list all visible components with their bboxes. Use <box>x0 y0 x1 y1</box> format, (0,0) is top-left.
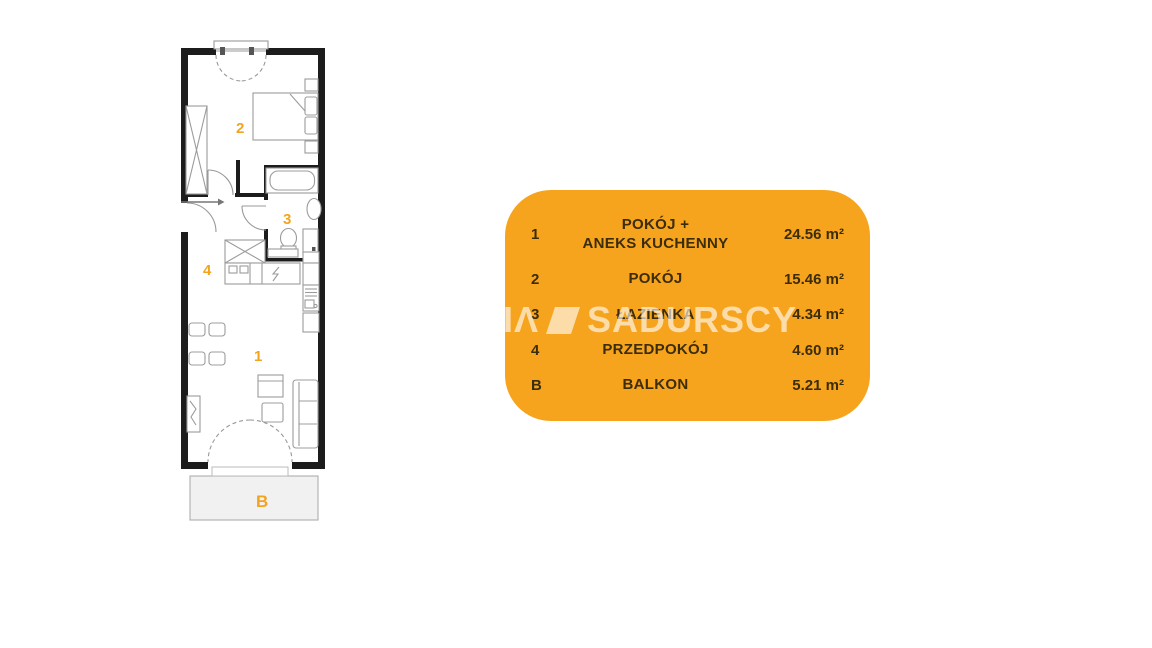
legend-row: B BALKON 5.21 m² <box>531 376 844 395</box>
legend-row-name: POKÓJ <box>567 270 744 289</box>
sofa <box>293 380 318 448</box>
legend-row-name: PRZEDPOKÓJ <box>567 341 744 360</box>
hall-label: 4 <box>203 262 212 279</box>
chair <box>209 352 225 365</box>
washbasin <box>307 199 321 220</box>
balcony: B <box>190 467 318 520</box>
armchair <box>262 403 283 422</box>
vanity <box>268 249 298 257</box>
bedroom-label: 2 <box>236 120 244 137</box>
legend-row-name: BALKON <box>567 376 744 395</box>
legend-row-number: 3 <box>531 306 567 323</box>
legend-row-name: ŁAZIENKA <box>567 306 744 325</box>
legend-row: 3 ŁAZIENKA 4.34 m² <box>531 306 844 325</box>
nightstand <box>305 141 318 153</box>
kitchen-column <box>303 252 319 332</box>
legend-row-name: POKÓJ + ANEKS KUCHENNY <box>567 216 744 254</box>
floor-plan: B <box>150 25 370 530</box>
kitchen-counter <box>225 263 300 284</box>
page: B <box>0 0 1152 648</box>
legend-row-number: 1 <box>531 226 567 243</box>
living-label: 1 <box>254 348 262 365</box>
legend-row-number: B <box>531 377 567 394</box>
tv-board <box>187 396 200 432</box>
washer-cabinet <box>225 240 265 263</box>
chair <box>189 323 205 336</box>
legend-row-area: 15.46 m² <box>744 271 844 288</box>
bathroom-fixtures <box>266 168 321 257</box>
balcony-door <box>208 420 292 462</box>
legend-row: 1 POKÓJ + ANEKS KUCHENNY 24.56 m² <box>531 216 844 254</box>
bed <box>253 93 318 140</box>
nightstand <box>305 79 318 91</box>
entry-arrow-icon <box>218 199 225 206</box>
legend-row: 4 PRZEDPOKÓJ 4.60 m² <box>531 341 844 360</box>
legend-row-area: 24.56 m² <box>744 226 844 243</box>
window <box>214 41 268 81</box>
entry-door <box>181 199 225 233</box>
balcony-label: B <box>256 492 268 511</box>
coffee-table <box>258 375 283 397</box>
bathroom-label: 3 <box>283 211 291 228</box>
chair <box>209 323 225 336</box>
chair <box>189 352 205 365</box>
legend-row: 2 POKÓJ 15.46 m² <box>531 270 844 289</box>
living-furniture <box>187 323 318 448</box>
bathtub <box>266 168 318 193</box>
legend-row-number: 2 <box>531 271 567 288</box>
legend-row-area: 5.21 m² <box>744 377 844 394</box>
bathroom-cabinet <box>303 229 318 253</box>
legend-row-number: 4 <box>531 342 567 359</box>
legend-row-area: 4.60 m² <box>744 342 844 359</box>
legend-row-area: 4.34 m² <box>744 306 844 323</box>
legend-panel: 1 POKÓJ + ANEKS KUCHENNY 24.56 m² 2 POKÓ… <box>505 190 870 421</box>
wardrobe <box>186 106 207 194</box>
